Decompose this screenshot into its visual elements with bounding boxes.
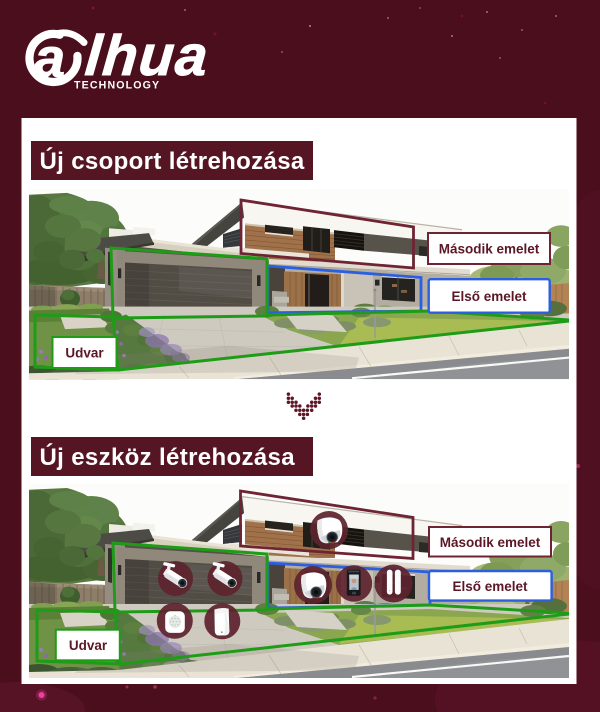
svg-text:Első emelet: Első emelet (451, 289, 527, 304)
svg-text:Második emelet: Második emelet (440, 535, 541, 550)
svg-text:Udvar: Udvar (65, 346, 104, 361)
svg-text:lhua: lhua (83, 24, 212, 88)
svg-text:Új csoport létrehozása: Új csoport létrehozása (40, 147, 305, 175)
svg-text:Első emelet: Első emelet (452, 579, 528, 594)
svg-text:Új eszköz létrehozása: Új eszköz létrehozása (40, 443, 296, 471)
svg-text:TECHNOLOGY: TECHNOLOGY (74, 80, 160, 92)
svg-text:Második emelet: Második emelet (439, 242, 540, 257)
svg-text:a: a (34, 26, 65, 89)
svg-text:Udvar: Udvar (69, 638, 108, 653)
